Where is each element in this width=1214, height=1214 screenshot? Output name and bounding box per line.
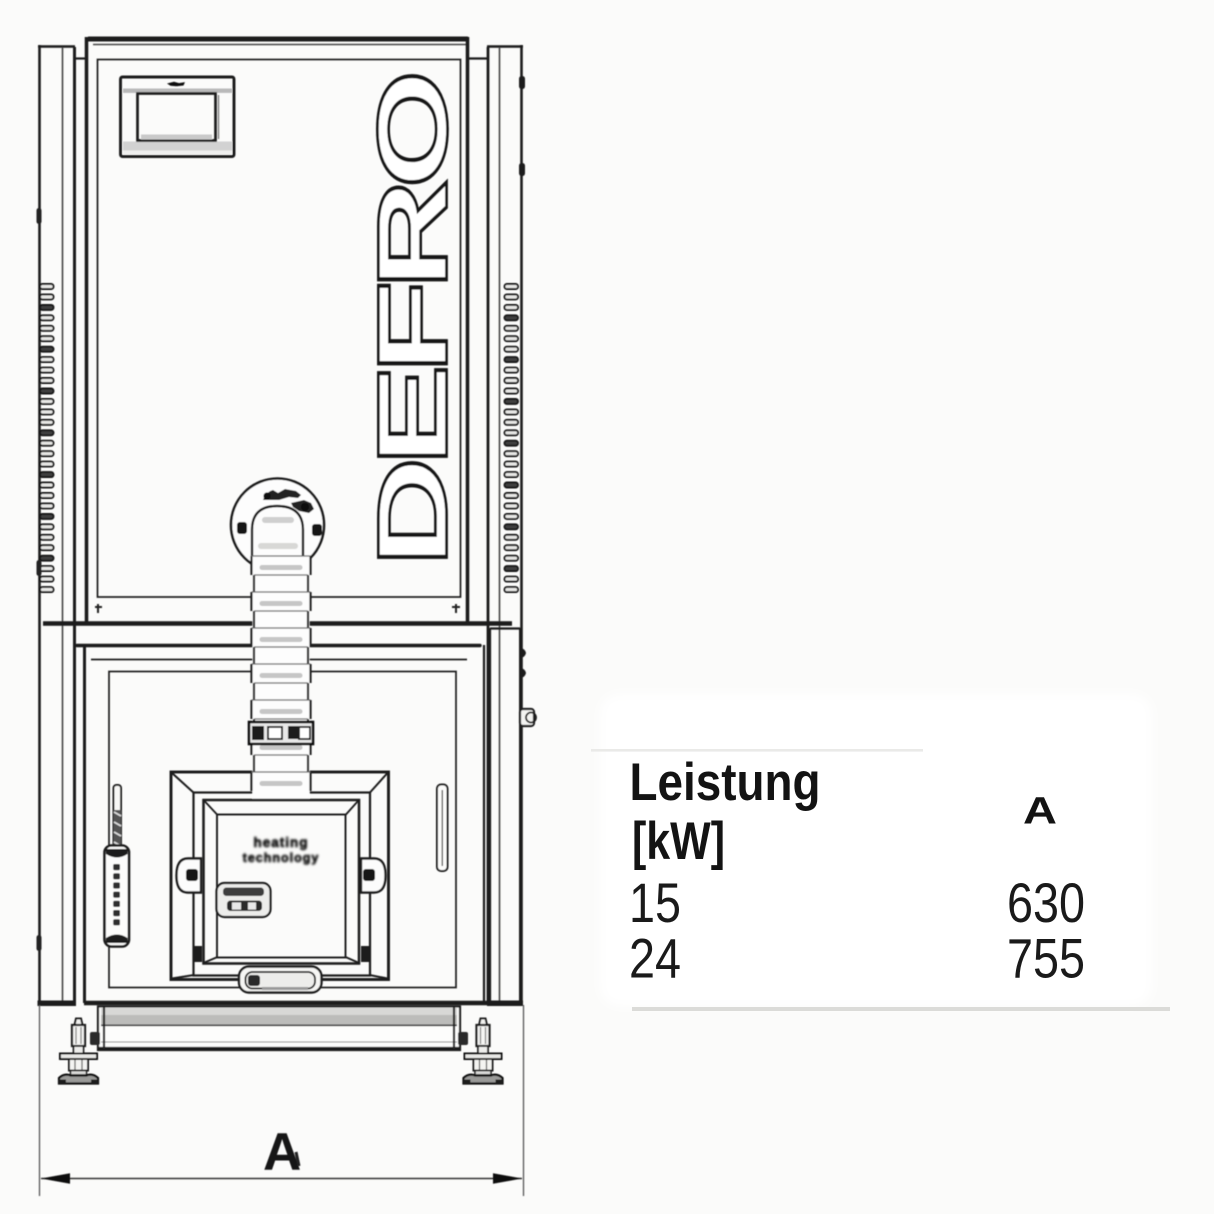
svg-text:755: 755 xyxy=(1007,927,1085,990)
svg-text:24: 24 xyxy=(629,927,681,990)
svg-text:[kW]: [kW] xyxy=(632,812,725,871)
svg-text:heating: heating xyxy=(253,835,308,850)
svg-text:Leistung: Leistung xyxy=(630,753,821,812)
svg-text:technology: technology xyxy=(243,851,320,865)
svg-text:DEFRO: DEFRO xyxy=(357,76,468,567)
svg-text:15: 15 xyxy=(629,871,681,934)
svg-text:630: 630 xyxy=(1007,871,1085,934)
svg-text:A: A xyxy=(1023,791,1057,833)
